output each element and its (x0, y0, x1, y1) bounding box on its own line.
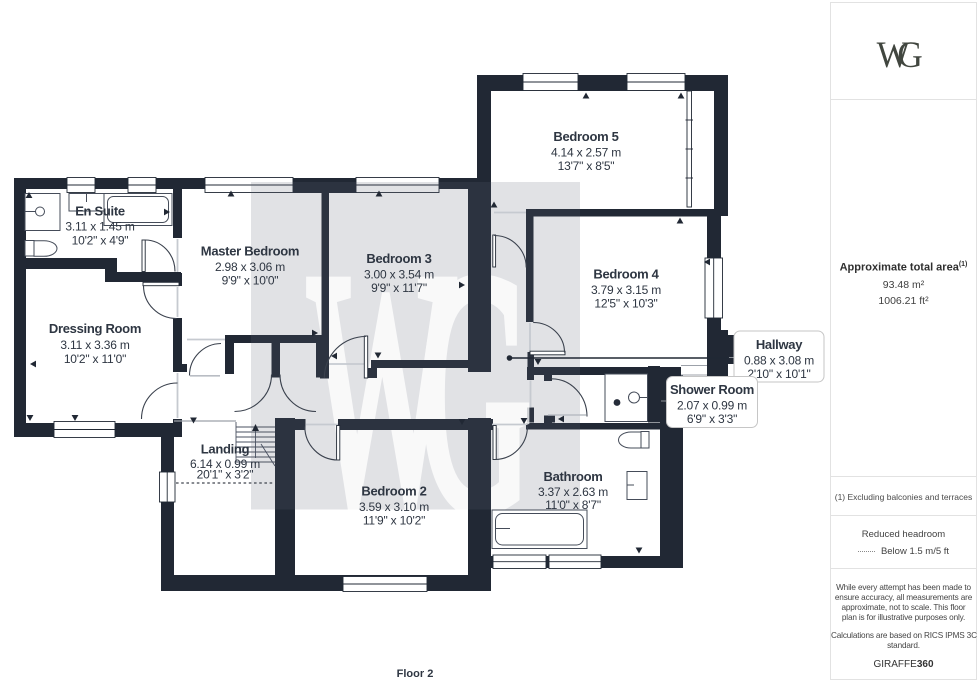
svg-text:4.14 x 2.57 m: 4.14 x 2.57 m (551, 146, 621, 160)
svg-text:Dressing Room: Dressing Room (49, 321, 141, 336)
svg-text:6'9" x 3'3": 6'9" x 3'3" (687, 412, 737, 426)
svg-text:Hallway: Hallway (756, 337, 803, 352)
svg-text:Bathroom: Bathroom (544, 469, 603, 484)
svg-text:11'0" x 8'7": 11'0" x 8'7" (545, 498, 601, 512)
svg-text:Bedroom 2: Bedroom 2 (361, 484, 426, 499)
svg-text:Bedroom 3: Bedroom 3 (366, 251, 431, 266)
svg-text:3.11 x 1.45 m: 3.11 x 1.45 m (65, 220, 134, 234)
svg-text:10'2" x 11'0": 10'2" x 11'0" (64, 352, 126, 366)
svg-text:3.59 x 3.10 m: 3.59 x 3.10 m (359, 500, 429, 514)
svg-text:WG: WG (877, 34, 922, 75)
svg-text:0.88 x 3.08 m: 0.88 x 3.08 m (744, 354, 814, 368)
svg-text:Shower Room: Shower Room (670, 382, 754, 397)
svg-text:Bedroom 4: Bedroom 4 (593, 267, 659, 282)
svg-text:En Suite: En Suite (75, 204, 125, 219)
svg-text:2.98 x 3.06 m: 2.98 x 3.06 m (215, 260, 285, 274)
svg-text:11'9" x 10'2": 11'9" x 10'2" (363, 514, 425, 528)
svg-text:9'9" x 11'7": 9'9" x 11'7" (371, 281, 427, 295)
svg-text:3.00 x 3.54 m: 3.00 x 3.54 m (364, 268, 434, 282)
svg-text:20'1" x 3'2": 20'1" x 3'2" (197, 468, 254, 482)
svg-text:12'5" x 10'3": 12'5" x 10'3" (594, 297, 657, 311)
svg-text:Bedroom 5: Bedroom 5 (553, 129, 618, 144)
svg-text:10'2" x 4'9": 10'2" x 4'9" (72, 234, 129, 248)
svg-text:Master Bedroom: Master Bedroom (201, 244, 299, 259)
svg-text:9'9" x 10'0": 9'9" x 10'0" (222, 274, 279, 288)
svg-text:3.11 x 3.36 m: 3.11 x 3.36 m (60, 338, 129, 352)
svg-text:2.07 x 0.99 m: 2.07 x 0.99 m (677, 399, 747, 413)
svg-text:Landing: Landing (201, 442, 250, 457)
svg-text:13'7" x 8'5": 13'7" x 8'5" (558, 159, 615, 173)
svg-text:3.37 x 2.63 m: 3.37 x 2.63 m (538, 485, 608, 499)
svg-text:3.79 x 3.15 m: 3.79 x 3.15 m (591, 283, 661, 297)
